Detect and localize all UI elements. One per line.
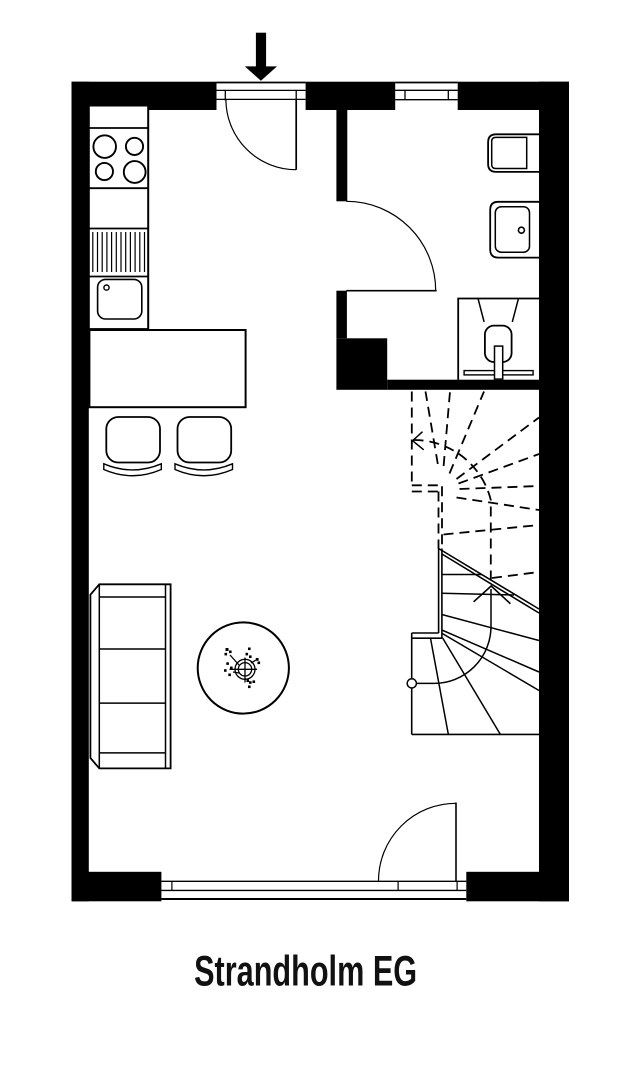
svg-text:Strandholm EG: Strandholm EG — [194, 949, 417, 996]
